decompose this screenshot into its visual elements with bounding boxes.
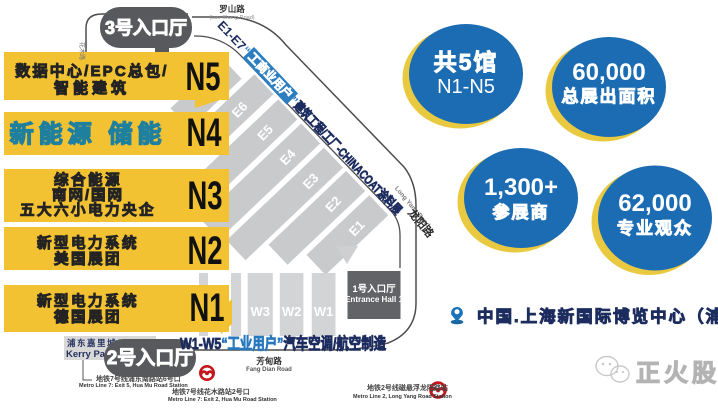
svg-text:N5: N5: [186, 55, 221, 99]
svg-text:五大六小电力央企: 五大六小电力央企: [20, 201, 156, 219]
svg-text:智能建筑: 智能建筑: [54, 79, 130, 97]
svg-text:专业观众: 专业观众: [617, 218, 693, 238]
svg-text:1,300+: 1,300+: [484, 174, 558, 201]
svg-text:W3: W3: [250, 304, 270, 319]
svg-text:新型电力系统: 新型电力系统: [37, 292, 139, 310]
svg-text:Metro Line 2, Long Yang Road S: Metro Line 2, Long Yang Road Station: [353, 394, 453, 400]
svg-text:N3: N3: [188, 174, 223, 218]
svg-text:Fang Dian Road: Fang Dian Road: [246, 367, 292, 373]
svg-text:参展商: 参展商: [493, 202, 550, 222]
svg-text:Metro Line 7: Exit 2, Hua Mu R: Metro Line 7: Exit 2, Hua Mu Road Statio…: [168, 397, 277, 403]
svg-text:N1-N5: N1-N5: [437, 76, 495, 98]
svg-text:3号入口厅: 3号入口厅: [105, 18, 187, 38]
svg-text:新能源 储能: 新能源 储能: [10, 120, 167, 148]
svg-text:罗山路: 罗山路: [219, 4, 245, 14]
svg-text:W2: W2: [282, 304, 302, 319]
svg-text:共5馆: 共5馆: [434, 49, 499, 75]
svg-text:(Luo-Shang Road): (Luo-Shang Road): [209, 15, 254, 21]
svg-text:数据中心/EPC总包/: 数据中心/EPC总包/: [15, 62, 168, 80]
svg-text:Entrance Hall 1: Entrance Hall 1: [345, 295, 403, 304]
svg-text:1号入口厅: 1号入口厅: [352, 284, 396, 295]
svg-text:芳甸路: 芳甸路: [256, 356, 282, 366]
svg-text:N2: N2: [188, 229, 223, 273]
svg-text:花木路: 花木路: [78, 42, 86, 60]
svg-text:62,000: 62,000: [618, 190, 691, 217]
svg-text:W1: W1: [314, 304, 334, 319]
svg-text:总展出面积: 总展出面积: [562, 86, 657, 106]
svg-text:中国.上海新国际博览中心（浦东）: 中国.上海新国际博览中心（浦东）: [477, 306, 718, 326]
svg-text:地铁2号线磁悬浮龙阳路站: 地铁2号线磁悬浮龙阳路站: [367, 383, 448, 392]
svg-text:南网/国网: 南网/国网: [52, 186, 124, 204]
svg-text:正火股份: 正火股份: [636, 360, 718, 387]
svg-text:W1-W5“工业用户”汽车空调/航空制造: W1-W5“工业用户”汽车空调/航空制造: [180, 334, 387, 353]
svg-text:综合能源: 综合能源: [54, 171, 122, 189]
svg-text:N1: N1: [190, 286, 225, 330]
svg-text:新型电力系统: 新型电力系统: [37, 234, 139, 252]
svg-text:美国展团: 美国展团: [54, 250, 122, 268]
svg-text:60,000: 60,000: [572, 59, 645, 86]
svg-text:德国展团: 德国展团: [54, 308, 122, 326]
svg-text:N4: N4: [187, 111, 223, 155]
svg-text:地铁7号线花木路站2号口: 地铁7号线花木路站2号口: [172, 387, 250, 396]
